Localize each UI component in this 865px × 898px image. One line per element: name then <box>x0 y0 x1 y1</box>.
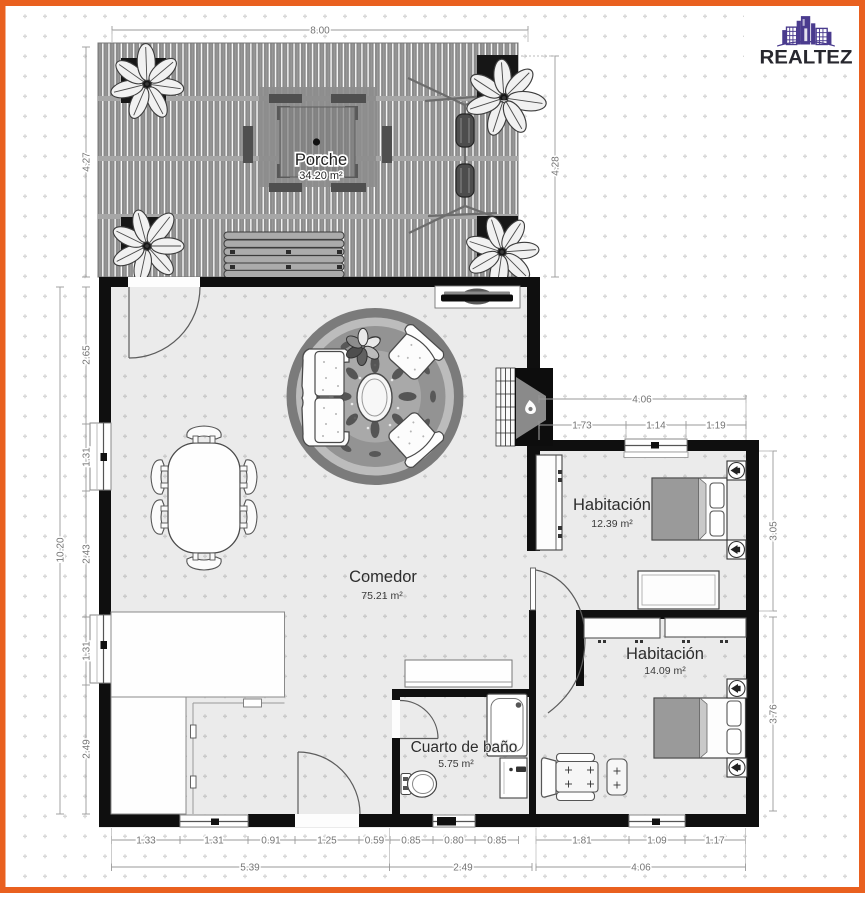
svg-text:1.09: 1.09 <box>647 836 667 847</box>
svg-text:Habitación: Habitación <box>626 645 704 663</box>
svg-text:5.39: 5.39 <box>240 863 260 874</box>
svg-text:0.91: 0.91 <box>261 836 281 847</box>
svg-text:1.19: 1.19 <box>706 421 726 432</box>
svg-text:3.05: 3.05 <box>769 521 780 541</box>
svg-text:0.85: 0.85 <box>487 836 507 847</box>
svg-text:10.20: 10.20 <box>56 537 67 562</box>
svg-text:1.25: 1.25 <box>317 836 337 847</box>
svg-text:4.27: 4.27 <box>82 152 93 172</box>
svg-text:1.31: 1.31 <box>82 447 93 467</box>
svg-text:2.49: 2.49 <box>82 739 93 759</box>
svg-text:5.75 m²: 5.75 m² <box>438 758 474 770</box>
svg-text:1.31: 1.31 <box>82 641 93 661</box>
svg-text:1.73: 1.73 <box>572 421 592 432</box>
svg-text:1.33: 1.33 <box>136 836 156 847</box>
svg-text:1.17: 1.17 <box>705 836 725 847</box>
svg-text:2.49: 2.49 <box>453 863 473 874</box>
svg-text:2.43: 2.43 <box>82 544 93 564</box>
svg-text:Porche: Porche <box>295 151 347 169</box>
svg-text:2.65: 2.65 <box>82 345 93 365</box>
svg-text:0.59: 0.59 <box>365 836 385 847</box>
svg-text:4.28: 4.28 <box>551 156 562 176</box>
svg-text:REALTEZ: REALTEZ <box>760 48 853 69</box>
svg-text:1.81: 1.81 <box>572 836 592 847</box>
svg-text:Comedor: Comedor <box>349 568 417 586</box>
svg-text:0.85: 0.85 <box>401 836 421 847</box>
svg-text:0.80: 0.80 <box>444 836 464 847</box>
svg-text:1.31: 1.31 <box>204 836 224 847</box>
svg-text:Habitación: Habitación <box>573 496 651 514</box>
svg-text:4.06: 4.06 <box>631 863 651 874</box>
svg-text:4.06: 4.06 <box>632 395 652 406</box>
svg-text:34.20 m²: 34.20 m² <box>299 170 343 182</box>
svg-text:3.76: 3.76 <box>769 704 780 724</box>
svg-text:75.21 m²: 75.21 m² <box>361 590 403 602</box>
svg-text:12.39 m²: 12.39 m² <box>591 518 633 530</box>
svg-text:1.14: 1.14 <box>646 421 666 432</box>
svg-text:8.00: 8.00 <box>310 26 330 37</box>
svg-text:14.09 m²: 14.09 m² <box>644 665 686 677</box>
svg-text:Cuarto de baño: Cuarto de baño <box>411 739 518 756</box>
